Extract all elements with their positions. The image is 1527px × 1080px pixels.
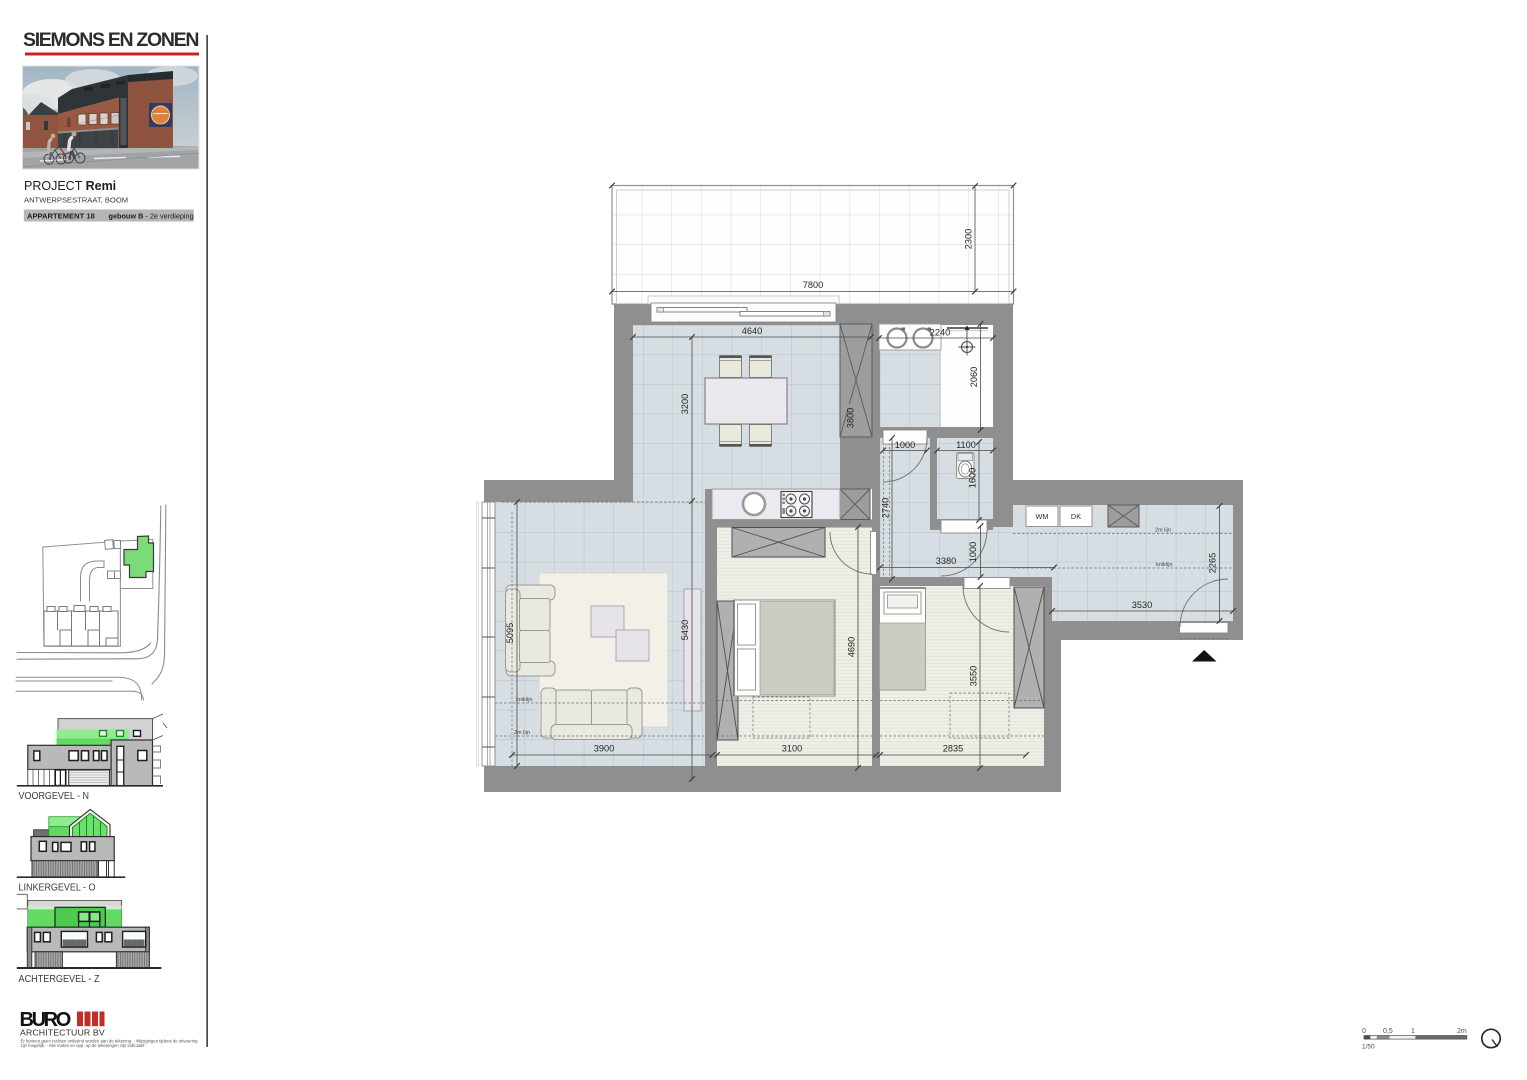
svg-text:1100: 1100 xyxy=(956,440,976,450)
svg-text:1600: 1600 xyxy=(968,468,978,488)
svg-text:2265: 2265 xyxy=(1208,553,1218,573)
svg-text:3200: 3200 xyxy=(680,394,690,414)
svg-text:5430: 5430 xyxy=(680,620,690,640)
svg-text:2240: 2240 xyxy=(930,328,950,338)
svg-text:zijn mogelijk. - Alle maten en: zijn mogelijk. - Alle maten en opp. op d… xyxy=(21,1043,146,1048)
svg-text:SIEMONS EN ZONEN: SIEMONS EN ZONEN xyxy=(23,29,199,51)
svg-text:ARCHITECTUUR BV: ARCHITECTUUR BV xyxy=(20,1027,105,1037)
svg-text:1000: 1000 xyxy=(968,542,978,562)
svg-text:3550: 3550 xyxy=(969,666,979,686)
svg-text:2m lijn: 2m lijn xyxy=(1155,528,1171,534)
svg-text:1000: 1000 xyxy=(895,440,915,450)
svg-text:VOORGEVEL - N: VOORGEVEL - N xyxy=(19,790,90,802)
svg-text:3100: 3100 xyxy=(782,744,802,754)
svg-text:kniklijn: kniklijn xyxy=(516,697,533,703)
svg-text:ACHTERGEVEL - Z: ACHTERGEVEL - Z xyxy=(19,973,101,985)
svg-text:1: 1 xyxy=(1411,1028,1415,1035)
svg-text:LINKERGEVEL - O: LINKERGEVEL - O xyxy=(19,882,96,894)
svg-text:2060: 2060 xyxy=(969,367,979,387)
svg-text:DK: DK xyxy=(1071,512,1081,521)
svg-text:0,5: 0,5 xyxy=(1383,1028,1393,1035)
svg-text:kniklijn: kniklijn xyxy=(1156,562,1173,568)
svg-text:0: 0 xyxy=(1362,1028,1366,1035)
svg-text:4640: 4640 xyxy=(742,326,762,336)
svg-text:PROJECT Remi: PROJECT Remi xyxy=(24,179,116,193)
svg-text:ANTWERPSESTRAAT, BOOM: ANTWERPSESTRAAT, BOOM xyxy=(24,196,128,205)
svg-text:gebouw B - 2e verdieping: gebouw B - 2e verdieping xyxy=(109,211,194,220)
svg-text:WM: WM xyxy=(1036,512,1049,521)
svg-text:1/50: 1/50 xyxy=(1362,1044,1375,1051)
svg-text:3380: 3380 xyxy=(936,556,956,566)
svg-text:7800: 7800 xyxy=(803,280,823,290)
svg-text:4690: 4690 xyxy=(847,637,857,657)
svg-text:APPARTEMENT 18: APPARTEMENT 18 xyxy=(27,211,95,220)
svg-text:2m: 2m xyxy=(1457,1028,1467,1035)
svg-text:2m lijn: 2m lijn xyxy=(514,730,530,736)
svg-text:2300: 2300 xyxy=(964,229,974,249)
svg-text:5095: 5095 xyxy=(505,623,515,643)
svg-text:3900: 3900 xyxy=(594,744,614,754)
svg-text:3530: 3530 xyxy=(1132,600,1152,610)
svg-text:3800: 3800 xyxy=(846,408,856,428)
svg-text:2835: 2835 xyxy=(943,744,963,754)
svg-text:2740: 2740 xyxy=(881,498,891,518)
